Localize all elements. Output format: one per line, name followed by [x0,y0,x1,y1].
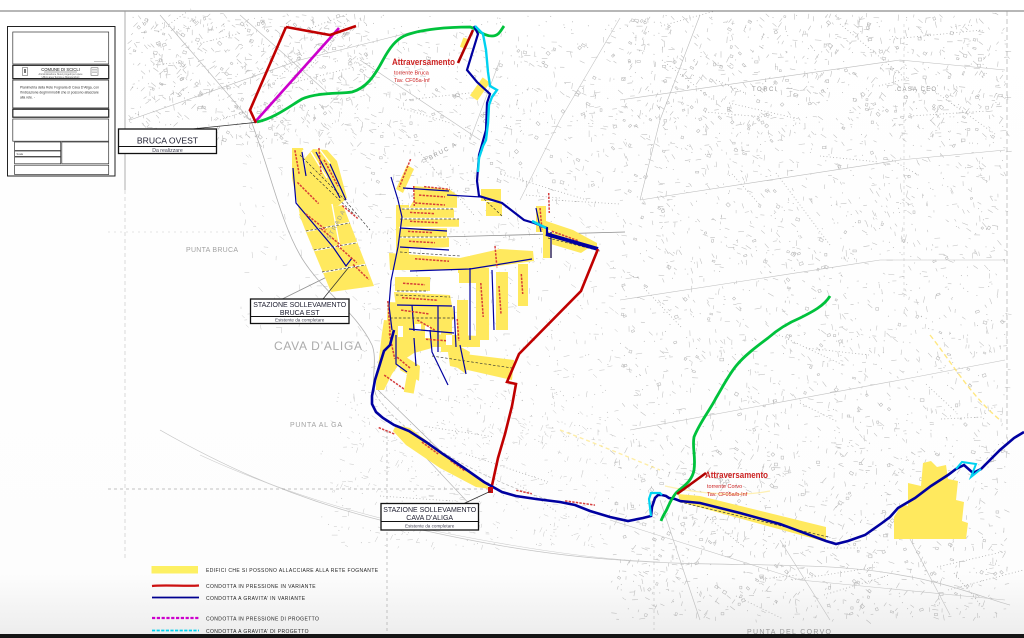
svg-text:Scala: Scala [17,152,24,156]
svg-text:CONDOTTA IN PRESSIONE IN VARIA: CONDOTTA IN PRESSIONE IN VARIANTE [206,584,316,590]
svg-text:CASA CEO: CASA CEO [897,87,937,93]
svg-text:CAVA D’ALIGA: CAVA D’ALIGA [274,339,362,353]
svg-text:Planimetria della Rete Fognari: Planimetria della Rete Fognaria di Cava … [20,86,99,90]
svg-text:PUNTA BRUCA: PUNTA BRUCA [186,247,238,254]
svg-text:CONDOTTA A GRAVITA’ IN VARIANT: CONDOTTA A GRAVITA’ IN VARIANTE [206,596,306,602]
svg-text:CAVA D’ALIGA: CAVA D’ALIGA [406,515,453,522]
svg-text:torrente Bruca: torrente Bruca [394,71,430,77]
svg-text:Da realizzare: Da realizzare [152,148,183,154]
svg-text:BRUCA OVEST: BRUCA OVEST [137,136,199,146]
svg-text:Ufficio area Tecnica e Manuten: Ufficio area Tecnica e Manutenzioni [42,76,80,79]
svg-text:Esistente da completare: Esistente da completare [405,524,455,529]
svg-text:CONDOTTA IN PRESSIONE DI PROGE: CONDOTTA IN PRESSIONE DI PROGETTO [206,617,319,623]
svg-text:COMUNE DI SCICLI: COMUNE DI SCICLI [41,67,80,72]
svg-text:STAZIONE SOLLEVAMENTO: STAZIONE SOLLEVAMENTO [383,507,477,514]
svg-text:PUNTA AL GA: PUNTA AL GA [290,422,342,429]
svg-text:Tav. CF05a/b-Inf: Tav. CF05a/b-Inf [707,492,748,498]
svg-text:EDIFICI CHE SI POSSONO ALLACCI: EDIFICI CHE SI POSSONO ALLACCIARE ALLA R… [206,568,379,574]
svg-text:Esistente da completare: Esistente da completare [275,318,325,323]
svg-text:Attraversamento: Attraversamento [705,470,769,480]
svg-text:alla rete. -: alla rete. - [20,96,35,100]
svg-text:Tav. CF05a-Inf: Tav. CF05a-Inf [394,78,430,84]
svg-text:BRUCA EST: BRUCA EST [280,310,320,317]
svg-text:TORCI: TORCI [752,87,778,93]
svg-text:l’indicazione degli immobili c: l’indicazione degli immobili che si poss… [20,91,99,95]
svg-text:STAZIONE SOLLEVAMENTO: STAZIONE SOLLEVAMENTO [253,302,347,309]
svg-text:torrente Corvo: torrente Corvo [707,484,742,490]
svg-text:Attraversamento: Attraversamento [392,57,456,67]
